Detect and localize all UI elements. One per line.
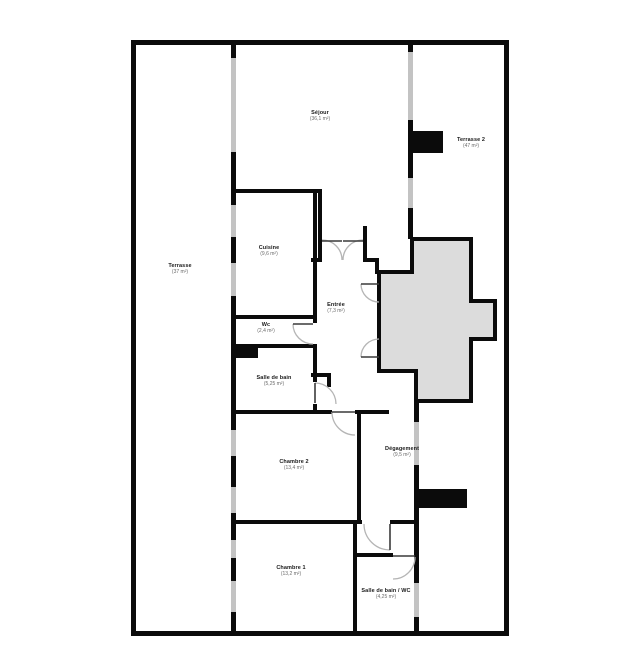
floorplan-svg: [0, 0, 640, 662]
door-entree-east-2: [361, 339, 379, 357]
window-segment: [231, 540, 236, 558]
wall-chambre2-bottom: [233, 520, 362, 524]
window-segment: [408, 178, 413, 208]
door-chambre2: [332, 412, 355, 435]
window-segment: [231, 58, 236, 152]
wall-hall-v: [327, 373, 331, 387]
wall-chambre2-top-left: [233, 410, 332, 414]
door-sdb-wc: [393, 556, 415, 579]
window-segment: [231, 581, 236, 612]
window-segment: [231, 430, 236, 456]
wall-door-jamb-right: [363, 226, 367, 262]
black-block-bathroom: [234, 348, 258, 358]
wall-chambre1-right: [353, 522, 357, 632]
door-wc: [293, 324, 313, 344]
wall-chambre2-top-right: [355, 410, 389, 414]
wall-cuisine-top: [233, 189, 322, 193]
wall-cuisine-wc: [233, 315, 315, 319]
wall-sdbwc-top: [357, 553, 393, 557]
black-block-right: [414, 489, 467, 508]
window-segment: [414, 422, 419, 465]
door-entree-east-1: [361, 284, 379, 302]
window-segment: [231, 487, 236, 513]
floorplan-page: Séjour (36,1 m²) Terrasse 2 (47 m²) Terr…: [0, 0, 640, 662]
wall-degagement-left: [357, 414, 361, 522]
wall-wc-sdb: [233, 344, 315, 348]
wall-vestibule-top: [390, 520, 416, 524]
wall-column-upper: [313, 189, 317, 323]
door-salle-de-bain: [315, 383, 336, 404]
window-segment: [231, 205, 236, 237]
window-segment: [231, 263, 236, 296]
double-door-sejour-entree: [322, 240, 363, 260]
wall-door-jamb-left: [318, 189, 322, 262]
door-degagement-vestibule: [364, 524, 390, 550]
window-segment: [414, 583, 419, 617]
core-cross-shape: [379, 239, 495, 401]
black-block-terrace2: [408, 131, 443, 153]
window-segment: [408, 52, 413, 120]
